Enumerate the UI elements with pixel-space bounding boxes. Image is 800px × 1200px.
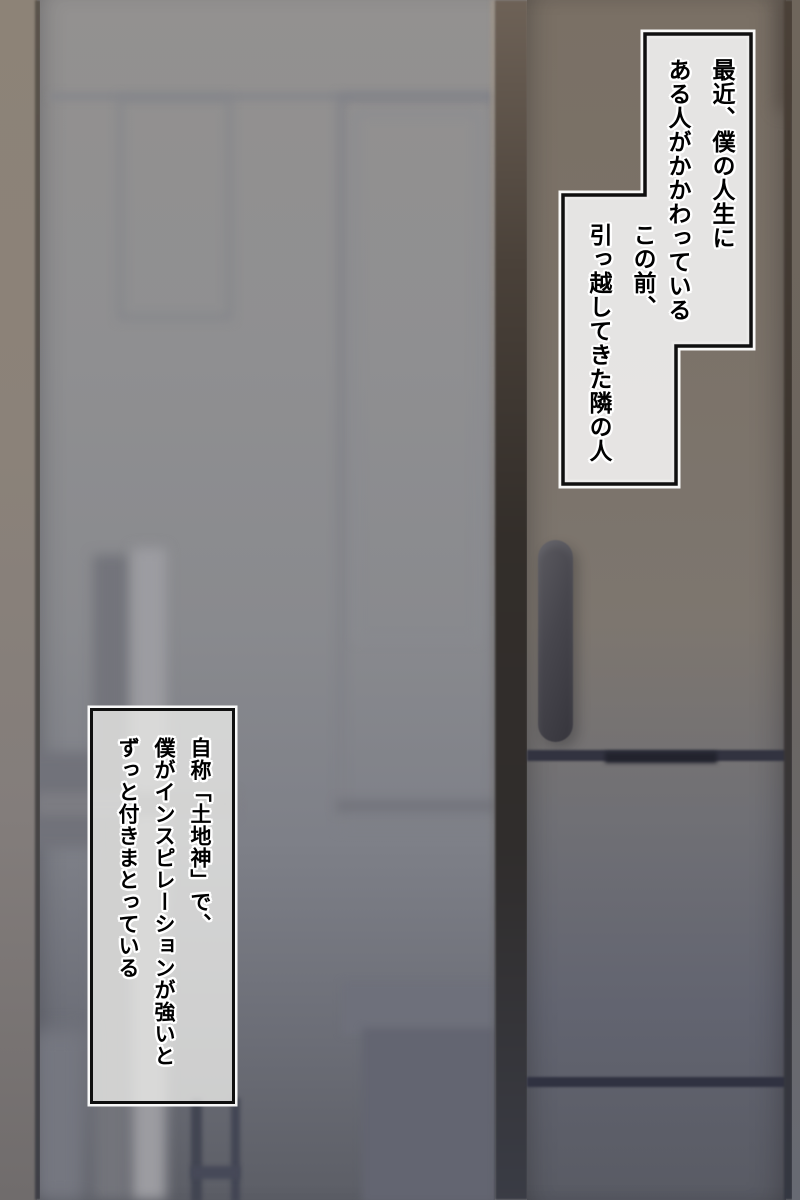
blurred-chair-leg: [231, 1098, 240, 1200]
refrigerator-seam-lower: [527, 1077, 786, 1087]
manga-page: 最近、僕の人生に ある人がかかわっている この前、 引っ越してきた隣の人 自称「…: [0, 0, 800, 1200]
left-wall-strip: [0, 0, 37, 1200]
narration-line: 僕がインスピレーションが強いと: [146, 737, 182, 1091]
blurred-floor-light: [40, 1030, 86, 1200]
blurred-table-top: [342, 982, 495, 1034]
blurred-small-panel: [118, 96, 232, 320]
blurred-table-body: [362, 1028, 495, 1200]
narration-line: 最近、僕の人生に: [699, 58, 743, 340]
blurred-chair-rung: [191, 1166, 240, 1179]
refrigerator-handle: [538, 540, 573, 742]
blurred-door-frame-inner: [354, 112, 480, 642]
narration-line: ずっと付きまとっている: [110, 737, 146, 1091]
narration-box-self-proclaimed: 自称「土地神」で、 僕がインスピレーションが強いと ずっと付きまとっている: [90, 708, 235, 1104]
narration-text: 自称「土地神」で、 僕がインスピレーションが強いと ずっと付きまとっている: [93, 711, 232, 1101]
door-frame-bar: [495, 0, 528, 1200]
blurred-chair-leg: [191, 1098, 202, 1200]
narration-line: 自称「土地神」で、: [182, 737, 218, 1091]
narration-box-neighbor: この前、 引っ越してきた隣の人: [563, 195, 676, 484]
narration-line: 引っ越してきた隣の人: [576, 223, 620, 478]
right-wall-strip: [792, 0, 800, 1200]
blurred-door-sill: [336, 800, 495, 812]
narration-line: この前、: [620, 223, 664, 478]
refrigerator-groove: [605, 752, 717, 763]
